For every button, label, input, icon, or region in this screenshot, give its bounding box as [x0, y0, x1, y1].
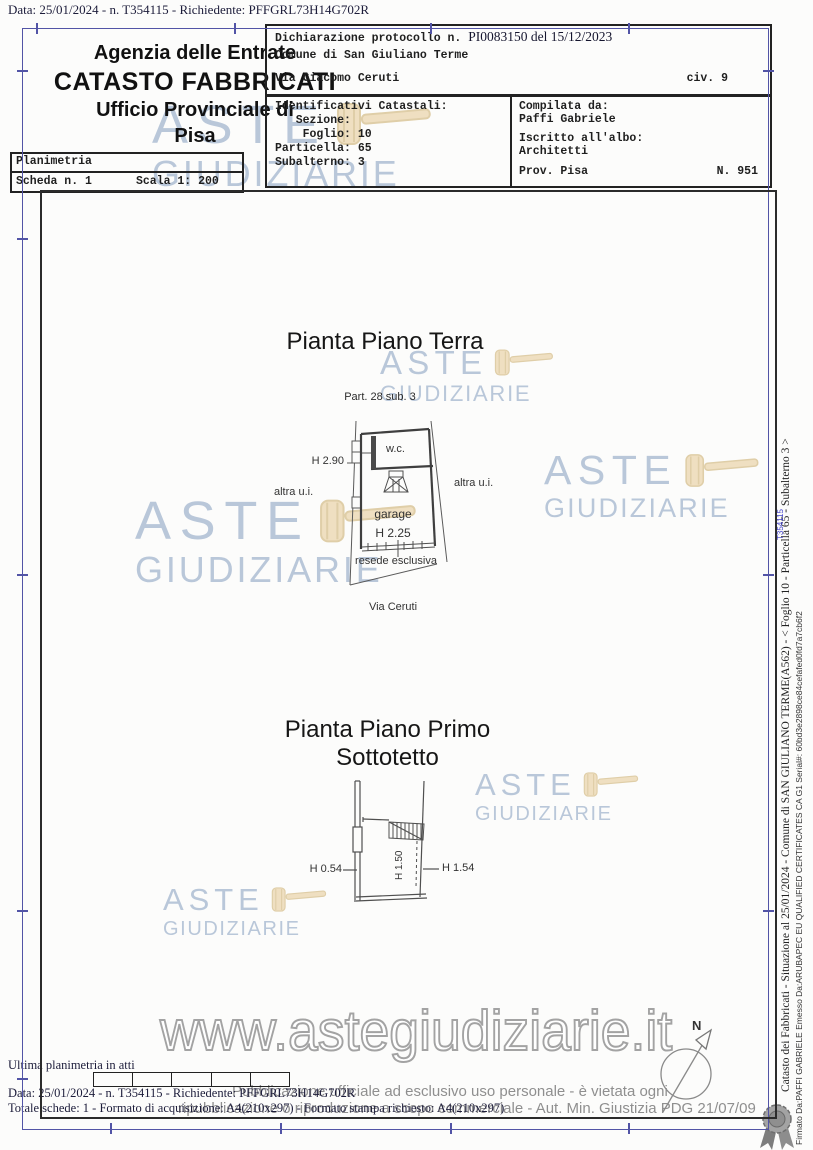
north-arrow-icon: [655, 1016, 725, 1116]
frame-tick: [234, 23, 236, 34]
compilata-name: Paffi Gabriele: [519, 113, 616, 126]
planimetria-box: Planimetria Scheda n. 1 Scala 1: 200: [10, 152, 244, 193]
ultima-planimetria-note: Ultima planimetria in atti: [8, 1058, 135, 1073]
sidebar-signature-line: Firmato Da:PAFFI GABRIELE Emesso Da:ARUB…: [794, 495, 804, 1145]
frame-tick: [430, 23, 432, 34]
ground-floor-title: Pianta Piano Terra: [285, 328, 485, 356]
scale-bar-cell: [172, 1073, 211, 1086]
frame-tick: [17, 70, 28, 72]
albo-value: Architetti: [519, 145, 588, 158]
adjacent-unit-right-label: altra u.i.: [454, 477, 493, 489]
gavel-icon: [582, 769, 640, 800]
subalterno-line: Subalterno: 3: [275, 156, 365, 169]
planimetria-title: Planimetria: [12, 154, 242, 173]
scale-bar-cell: [251, 1073, 289, 1086]
frame-tick: [763, 910, 774, 912]
compilata-label: Compilata da:: [519, 100, 609, 113]
foglio-line: Foglio: 10: [275, 128, 372, 141]
scale-bar-cell: [212, 1073, 251, 1086]
gavel-icon: [683, 450, 761, 491]
scale-bar-cell: [133, 1073, 172, 1086]
aste-giudiziarie-watermark: ASTE GIUDIZIARIE: [544, 450, 761, 522]
watermark-giudiziarie-text: GIUDIZIARIE: [544, 495, 761, 522]
protocol-label: Dichiarazione protocollo n.: [275, 32, 461, 45]
frame-tick: [628, 23, 630, 34]
scale-value: Scala 1: 200: [136, 175, 219, 188]
comune-line: Comune di San Giuliano Terme: [275, 49, 468, 62]
frame-tick: [17, 910, 28, 912]
declaration-box: Dichiarazione protocollo n. PI0083150 de…: [265, 24, 772, 96]
prov-label: Prov. Pisa: [519, 165, 588, 178]
albo-number: N. 951: [717, 165, 758, 178]
gavel-icon: [493, 346, 555, 379]
albo-label: Iscritto all'albo:: [519, 132, 643, 145]
height-label-mid-rotated: H 1.50: [394, 836, 405, 880]
civic-number: civ. 9: [687, 72, 728, 85]
frame-tick: [450, 1123, 452, 1134]
height-label-garage: H 2.25: [362, 526, 424, 540]
attic-floor-title: Pianta Piano Primo Sottotetto: [235, 716, 540, 772]
box-divider: [510, 97, 512, 186]
protocol-line: Dichiarazione protocollo n. PI0083150 de…: [275, 29, 612, 45]
sezione-line: Sezione:: [275, 114, 351, 127]
scheda-number: Scheda n. 1: [16, 175, 136, 188]
particella-line: Particella: 65: [275, 142, 372, 155]
height-label-right: H 1.54: [442, 862, 474, 874]
adjacent-unit-left-label: altra u.i.: [274, 486, 313, 498]
aste-giudiziarie-watermark: ASTE GIUDIZIARIE: [163, 884, 328, 939]
cadastral-identifiers-box: Identificativi Catastali: Sezione: Fogli…: [265, 95, 772, 188]
parcel-sub-label: Part. 28 sub. 3: [330, 391, 430, 403]
watermark-aste-text: ASTE: [544, 450, 677, 491]
footer-data-line: Data: 25/01/2024 - n. T354115 - Richiede…: [8, 1086, 355, 1101]
resede-label: resede esclusiva: [346, 555, 446, 567]
street-line: Via Giacomo Ceruti: [275, 72, 399, 85]
frame-tick: [763, 574, 774, 576]
astegiudiziarie-url-watermark: www.astegiudiziarie.it: [160, 998, 672, 1064]
attic-floor-plan-drawing: [310, 765, 510, 915]
watermark-aste-text: ASTE: [163, 884, 264, 915]
scale-bar-cell: [94, 1073, 133, 1086]
footer-totale-line: Totale schede: 1 - Formato di acquisizio…: [8, 1101, 504, 1116]
frame-tick: [110, 1123, 112, 1134]
document-header-line: Data: 25/01/2024 - n. T354115 - Richiede…: [8, 2, 369, 18]
height-label-wc: H 2.90: [306, 455, 344, 467]
frame-tick: [36, 23, 38, 34]
wc-room-label: w.c.: [386, 443, 405, 455]
frame-tick: [17, 574, 28, 576]
street-name-label: Via Ceruti: [353, 601, 433, 613]
identificativi-title: Identificativi Catastali:: [275, 100, 448, 113]
garage-room-label: garage: [362, 507, 424, 521]
protocol-value: PI0083150 del 15/12/2023: [468, 29, 612, 44]
frame-tick: [763, 70, 774, 72]
frame-tick: [280, 1123, 282, 1134]
frame-tick: [17, 238, 28, 240]
height-label-left: H 0.54: [300, 863, 342, 875]
graphic-scale-bar: [93, 1072, 290, 1087]
watermark-giudiziarie-text: GIUDIZIARIE: [163, 919, 328, 939]
north-label: N: [692, 1018, 701, 1033]
sidebar-catasto-line: Catasto dei Fabbricati - Situazione al 2…: [780, 332, 792, 1092]
cadastral-floorplan-document: Data: 25/01/2024 - n. T354115 - Richiede…: [0, 0, 813, 1150]
frame-tick: [17, 1078, 28, 1080]
frame-tick: [628, 1123, 630, 1134]
sidebar-doc-mark: T354115: [776, 509, 785, 540]
